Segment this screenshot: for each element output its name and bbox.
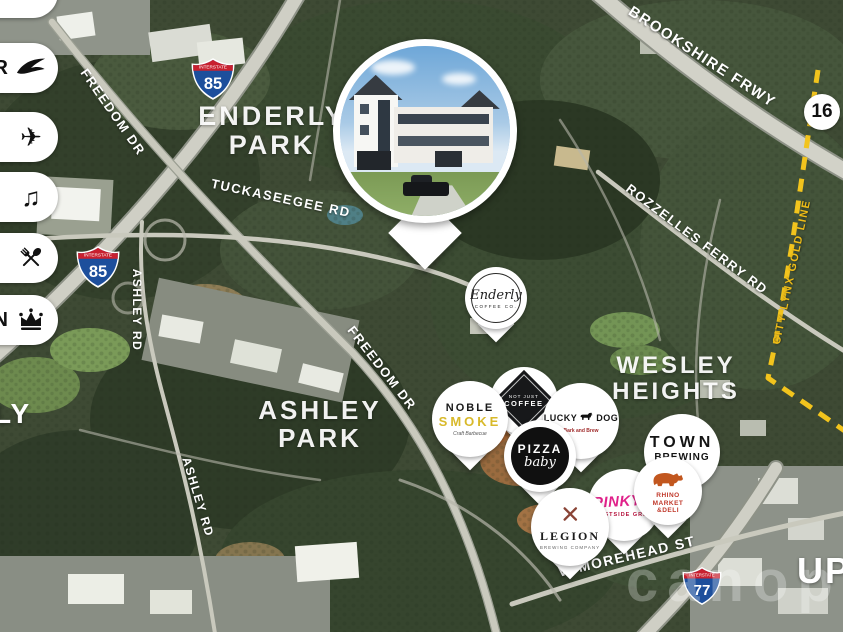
- pin-enderly-coffee[interactable]: Enderly COFFEE CO.: [465, 267, 527, 329]
- crossed-paddles-icon: [560, 504, 580, 529]
- pin-legion-brewing[interactable]: LEGION BREWING COMPANY: [531, 488, 609, 566]
- dog-icon: [579, 409, 594, 427]
- nc-16-route-marker: 16: [804, 94, 840, 130]
- svg-text:85: 85: [89, 263, 107, 281]
- neighborhood-wesley-heights: WESLEY HEIGHTS: [612, 353, 740, 405]
- airplane-icon: ✈: [16, 122, 46, 152]
- enderly-coffee-logo: Enderly COFFEE CO.: [471, 273, 521, 323]
- svg-text:INTERSTATE: INTERSTATE: [84, 253, 112, 258]
- pin-property-hero[interactable]: [333, 39, 517, 223]
- aerial-map: FREEDOM DR FREEDOM DR TUCKASEEGEE RD ROZ…: [0, 0, 843, 632]
- amenity-pill-bird[interactable]: R: [0, 43, 58, 93]
- pin-noble-smoke[interactable]: NOBLE SMOKE Craft Barbecue: [432, 381, 508, 457]
- amenity-pill-dining[interactable]: [0, 233, 58, 283]
- bird-icon: [16, 53, 46, 83]
- svg-text:85: 85: [204, 75, 222, 93]
- rhino-icon: [649, 467, 687, 492]
- neighborhood-ashley-park: ASHLEY PARK: [258, 396, 381, 452]
- amenity-pill-uptown[interactable]: N: [0, 295, 58, 345]
- dining-icon: [16, 243, 46, 273]
- pizza-baby-logo: PIZZA baby: [511, 427, 569, 485]
- amenity-pill-airport[interactable]: ✈: [0, 112, 58, 162]
- amenity-pill-music[interactable]: ♫: [0, 172, 58, 222]
- svg-text:INTERSTATE: INTERSTATE: [199, 65, 227, 70]
- neighborhood-partial-right: UP: [797, 550, 843, 592]
- neighborhood-enderly-park: ENDERLY PARK: [198, 102, 346, 160]
- interstate-85-shield-2: INTERSTATE 85: [76, 245, 120, 294]
- road-label-ashley-rd-1: ASHLEY RD: [130, 269, 144, 352]
- crown-icon: [16, 305, 46, 335]
- pin-rhino-market[interactable]: RHINO MARKET &DELI: [634, 457, 702, 525]
- pin-pizza-baby[interactable]: PIZZA baby: [504, 420, 576, 492]
- neighborhood-partial-left: LY: [0, 398, 31, 430]
- interstate-85-shield-1: INTERSTATE 85: [191, 57, 235, 106]
- music-note-icon: ♫: [16, 182, 46, 212]
- property-rendering: [333, 39, 517, 223]
